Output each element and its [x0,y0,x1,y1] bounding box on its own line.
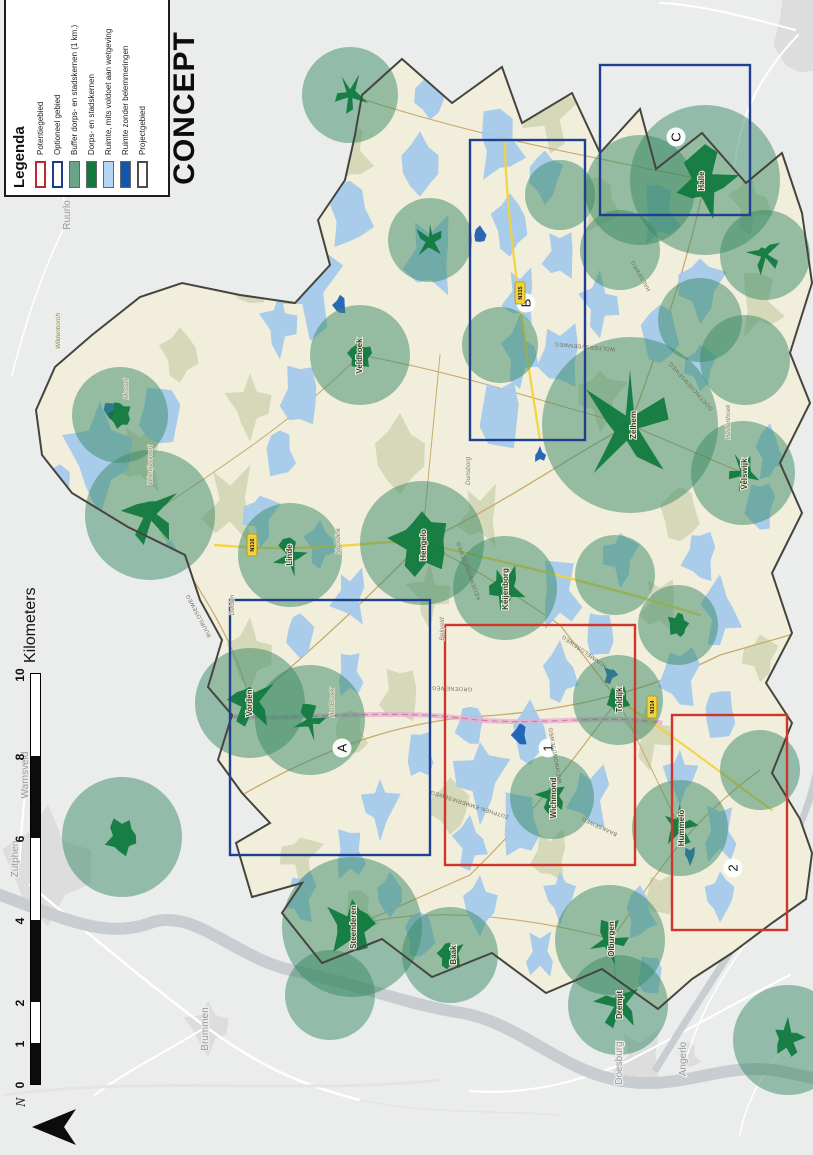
legend-item-label: Buffer dorps- en stadskernen (1 km.) [70,25,79,155]
legend-swatch [69,161,80,188]
scale-tick-label: 2 [13,990,27,1016]
legend-item: Ruimte, mits voldoet aan wetgeving [100,4,117,188]
town-label-steenderen: Steenderen [349,905,358,949]
legend-swatch [35,161,46,188]
town-label-keijenborg: Keijenborg [501,568,510,610]
legend-item-label: Optioneel gebied [53,95,62,156]
town-label-bekveld: Bekveld [439,617,446,641]
legend-item-label: Ruimte, mits voldoet aan wetgeving [104,29,113,155]
town-label-delden: Delden [229,594,236,615]
town-label-mossel: Mossel [123,378,130,399]
legend-item-label: Dorps- en stadskernen [87,74,96,155]
town-label-doesburg: Doesburg [614,1041,625,1084]
legend-title: Legenda [11,4,28,188]
concept-watermark: CONCEPT [168,3,202,213]
region-box-label: A [335,743,350,752]
road-shield-label: N316 [250,538,256,551]
scale-tick-label: 8 [13,744,27,770]
legend-swatch [120,161,131,188]
legend-swatch [52,161,63,188]
town-label-wildenborch: Wildenborch [55,313,62,349]
town-label-wientjesvoort: Wientjesvoort [147,444,154,485]
town-label-heidenhoek: Heidenhoek [725,404,732,439]
scale-bar-segments [30,673,41,1085]
town-label-halle: Halle [697,171,706,191]
scale-segment [31,756,40,838]
legend-panel: Legenda PotentiegebiedOptioneel gebiedBu… [4,0,170,197]
region-box-label: C [669,132,684,141]
town-label-drempt: Drempt [615,991,624,1019]
buffer-circle [462,307,538,383]
north-arrow-icon [14,1089,80,1149]
town-label-hengelo: Hengelo [419,529,428,561]
legend-swatch [86,161,97,188]
scale-segment [31,1002,40,1043]
buffer-circle [580,210,660,290]
town-label-veldhoek: Veldhoek [355,338,364,374]
town-label-olburgen: Olburgen [607,921,616,957]
legend-item-label: Ruimte zonder belemmeringen [121,46,130,155]
legend-item-label: Potentiegebied [36,102,45,155]
water-suitable-area [587,613,613,655]
region-box-label: 2 [726,864,741,871]
town-label-noordink: Noordink [335,527,342,554]
town-label-dunsborg: Dunsborg [465,457,472,486]
legend-swatch [103,161,114,188]
scale-tick-label: 4 [13,908,27,934]
buffer-circle [285,950,375,1040]
legend-swatch [137,161,148,188]
town-label-toldijk: Toldijk [615,687,624,713]
town-label-wichmond: Wichmond [549,777,558,818]
town-label-velswijk: Velswijk [740,458,749,490]
rotated-map-page: ABC12 N314N315N316 ZUTPHEN-EMMERIKSEWEGG… [0,0,813,1155]
scale-tick-label: 6 [13,826,27,852]
scale-tick-label: 1 [13,1031,27,1057]
buffer-circle [575,535,655,615]
legend-item: Buffer dorps- en stadskernen (1 km.) [66,4,83,188]
town-label-baak: Baak [449,945,458,965]
scale-tick-label: 10 [13,662,27,688]
town-label-linde: Linde [285,544,294,566]
town-label-brummen: Brummen [200,1007,211,1050]
legend-item: Optioneel gebied [49,4,66,188]
legend-item: Potentiegebied [32,4,49,188]
legend-item: Dorps- en stadskernen [83,4,100,188]
scale-unit-label: Kilometers [22,587,40,663]
map-canvas: ABC12 N314N315N316 ZUTPHEN-EMMERIKSEWEGG… [0,0,813,1155]
town-label-het-broek: Het Broek [329,688,336,718]
scale-segment [31,920,40,1002]
buffer-circle [658,278,742,362]
legend-item: Ruimte zonder belemmeringen [117,4,134,188]
scale-segment [31,1043,40,1084]
legend-item-label: Projectgebied [138,106,147,155]
town-label-zelhem: Zelhem [629,411,638,439]
legend-items: PotentiegebiedOptioneel gebiedBuffer dor… [32,4,151,188]
road-shield-label: N315 [518,286,524,299]
legend-item: Projectgebied [134,4,151,188]
scale-segment [31,838,40,920]
town-label-angerlo: Angerlo [678,1041,689,1076]
town-label-ruurlo: Ruurlo [62,200,73,230]
road-shield-label: N314 [650,699,656,713]
town-label-hummelo: Hummelo [677,810,686,847]
scale-segment [31,674,40,756]
town-label-vorden: Vorden [245,689,254,716]
